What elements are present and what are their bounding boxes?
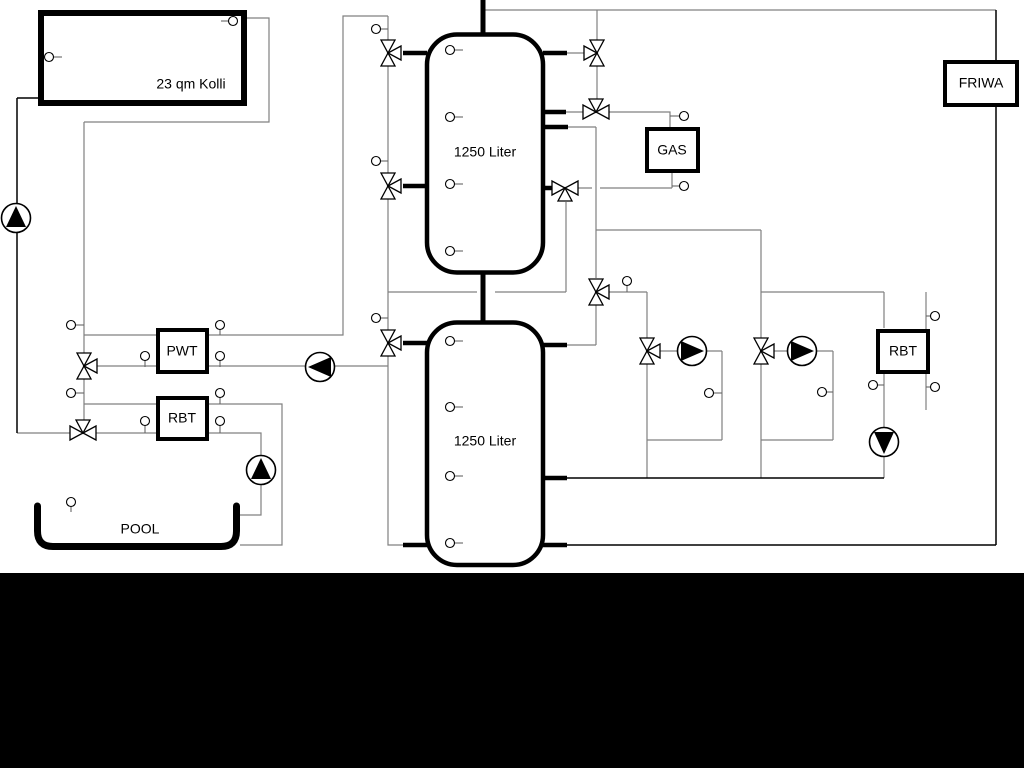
valve-circuit-riser-icon [589, 279, 609, 305]
temp-sensor-icon [216, 321, 225, 330]
temp-sensor-icon [67, 389, 76, 398]
temp-sensor-icon [931, 312, 940, 321]
valve-rbt-pool-icon [70, 420, 96, 440]
temp-sensor-icon [705, 389, 714, 398]
valve-heating-circuit-1-icon [640, 338, 660, 364]
pipe-branch-rbt-right [761, 292, 884, 328]
temp-sensor-icon [869, 381, 878, 390]
valve-tank1-top-right-icon [584, 40, 604, 66]
schematic-page: 23 qm Kolli 1250 Liter 1250 Liter GAS FR… [0, 0, 1024, 768]
pwt-label: PWT [166, 343, 198, 359]
temp-sensor-icon [818, 388, 827, 397]
valve-gas-return-icon [552, 181, 578, 201]
temp-sensor-icon [372, 314, 381, 323]
pipe-valve-to-tank2 [545, 292, 596, 345]
rbt-right-label: RBT [889, 343, 917, 359]
solar-pump-icon [2, 204, 31, 233]
valve-heating-circuit-2-icon [754, 338, 774, 364]
temp-sensor-icon [446, 247, 455, 256]
bottom-black-bar [0, 573, 1024, 768]
rbt-circuit-pump-icon [870, 428, 899, 457]
temp-sensor-icon [446, 472, 455, 481]
pipe-gas-return [543, 173, 672, 188]
temp-sensor-icon [216, 389, 225, 398]
temp-sensor-icon [446, 337, 455, 346]
temp-sensor-icon [446, 46, 455, 55]
pwt-charge-pump-icon [306, 353, 335, 382]
pool-pump-icon [247, 456, 276, 485]
pipe-tank-left-riser [388, 16, 404, 545]
temp-sensor-icon [45, 53, 54, 62]
temp-sensor-icon [931, 383, 940, 392]
valve-tank1-top-left-icon [381, 40, 401, 66]
temp-sensor-icon [372, 157, 381, 166]
pipe-branch-hk1 [609, 292, 647, 478]
temp-sensor-icon [446, 403, 455, 412]
rbt-left-label: RBT [168, 410, 196, 426]
valve-pwt-icon [77, 353, 97, 379]
temp-sensor-icon [446, 539, 455, 548]
pool-label: POOL [121, 521, 160, 537]
temp-sensor-icon [623, 277, 632, 286]
valve-tank2-left-icon [381, 330, 401, 356]
temp-sensor-icon [216, 417, 225, 426]
pipe-mid-riser [568, 127, 596, 278]
temp-sensor-icon [680, 112, 689, 121]
valve-tank1-mid-left-icon [381, 173, 401, 199]
temp-sensor-icon [141, 352, 150, 361]
pipe-gas-supply [609, 112, 670, 127]
temp-sensor-icon [372, 25, 381, 34]
temp-sensor-icon [446, 113, 455, 122]
temp-sensor-icon [141, 417, 150, 426]
hydraulic-schematic: 23 qm Kolli 1250 Liter 1250 Liter GAS FR… [0, 0, 1024, 573]
gas-label: GAS [657, 142, 687, 158]
heating-circuit-2-pump-icon [788, 337, 817, 366]
temp-sensor-icon [67, 498, 76, 507]
temp-sensor-icon [680, 182, 689, 191]
temp-sensor-icon [229, 17, 238, 26]
tank-top-label: 1250 Liter [454, 144, 517, 160]
temp-sensor-icon [216, 352, 225, 361]
tank-bottom-label: 1250 Liter [454, 433, 517, 449]
valve-gas-supply-icon [583, 99, 609, 119]
heating-circuit-1-pump-icon [678, 337, 707, 366]
pipe-solar-flow [17, 98, 38, 433]
collector-label: 23 qm Kolli [156, 76, 225, 92]
friwa-label: FRIWA [959, 75, 1004, 91]
temp-sensor-icon [446, 180, 455, 189]
temp-sensor-icon [67, 321, 76, 330]
